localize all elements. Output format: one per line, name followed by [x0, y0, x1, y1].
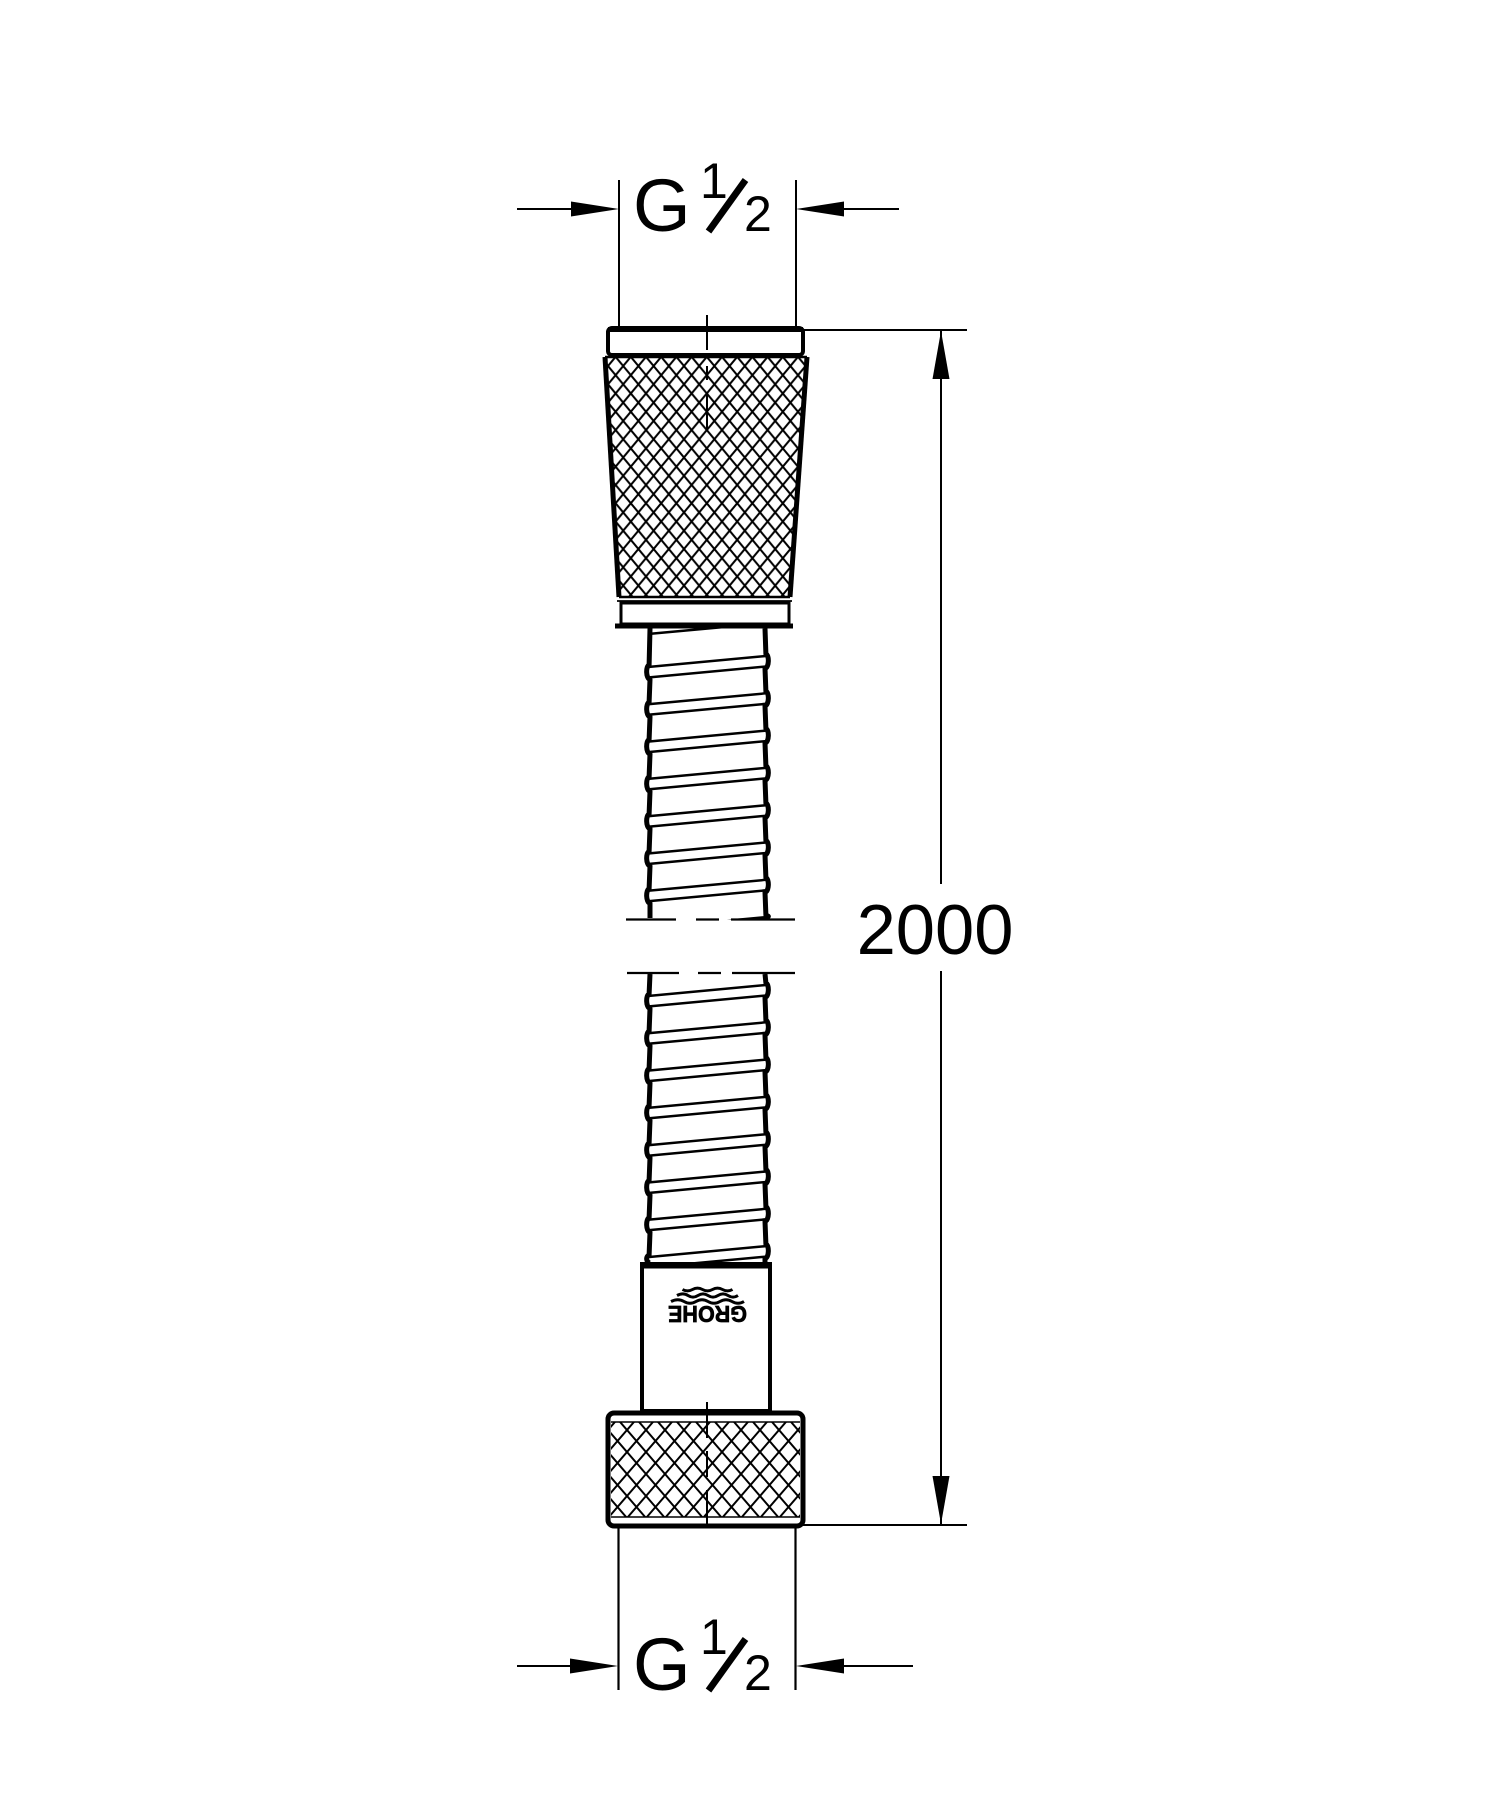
svg-text:2: 2 — [744, 186, 772, 242]
svg-text:2000: 2000 — [857, 890, 1014, 969]
svg-text:GROHE: GROHE — [668, 1301, 747, 1327]
svg-text:1: 1 — [700, 1609, 728, 1665]
svg-text:G: G — [633, 1623, 691, 1706]
svg-text:G: G — [633, 164, 691, 247]
svg-text:2: 2 — [744, 1645, 772, 1701]
svg-text:1: 1 — [700, 153, 728, 209]
